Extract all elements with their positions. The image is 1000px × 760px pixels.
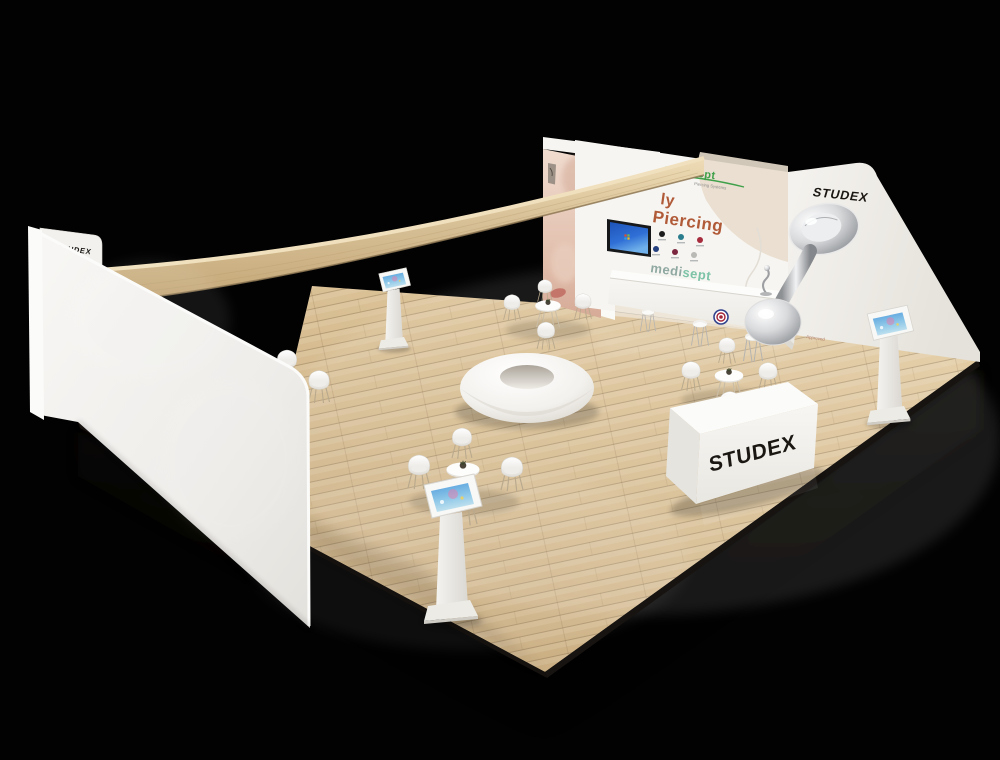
stud-sample-5 [672,249,678,255]
stud-sample-3 [697,237,703,243]
stud-sample-4 [653,246,659,252]
booth-render-stage: STUDEX STUDEX medisept Piercing Systems … [0,0,1000,760]
stud-sample-1 [659,231,665,237]
stud-sample-6 [691,252,697,258]
stud-sample-2 [678,234,684,240]
exhibition-booth-render: STUDEX STUDEX medisept Piercing Systems … [0,0,1000,760]
counter-seal-icon [714,310,728,324]
headline-line1: ly [659,191,676,210]
